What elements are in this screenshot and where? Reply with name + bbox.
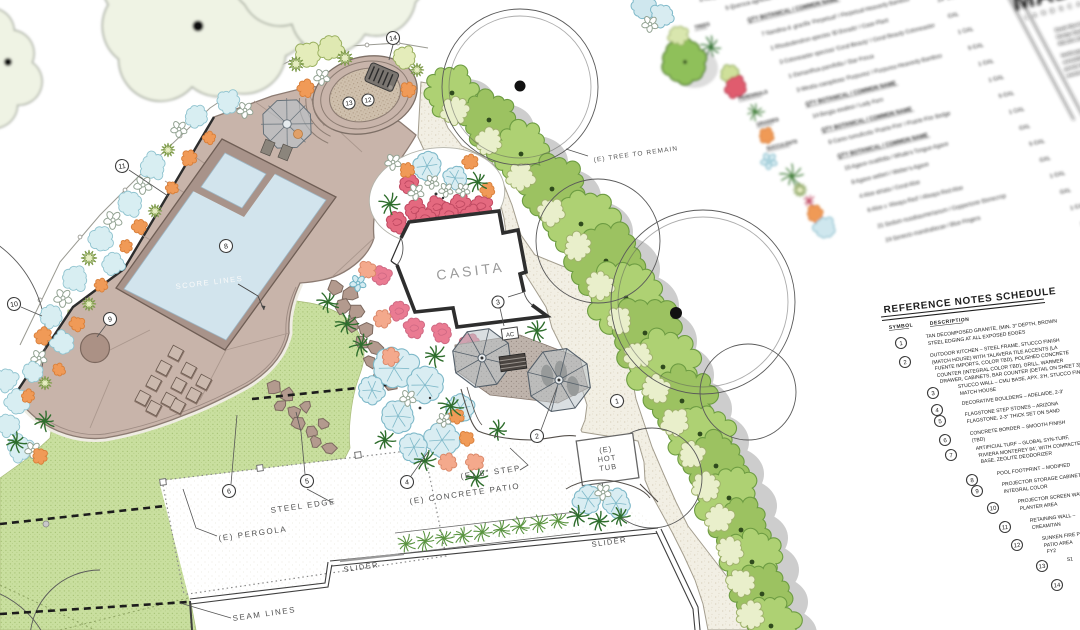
svg-text:12: 12 (364, 97, 373, 105)
svg-text:13: 13 (345, 100, 354, 108)
svg-text:14: 14 (389, 35, 398, 43)
svg-text:FY2: FY2 (1047, 548, 1057, 555)
svg-text:S1: S1 (1067, 556, 1074, 563)
svg-text:10: 10 (10, 301, 19, 309)
svg-text:11: 11 (118, 163, 126, 171)
svg-text:AC: AC (506, 332, 516, 339)
